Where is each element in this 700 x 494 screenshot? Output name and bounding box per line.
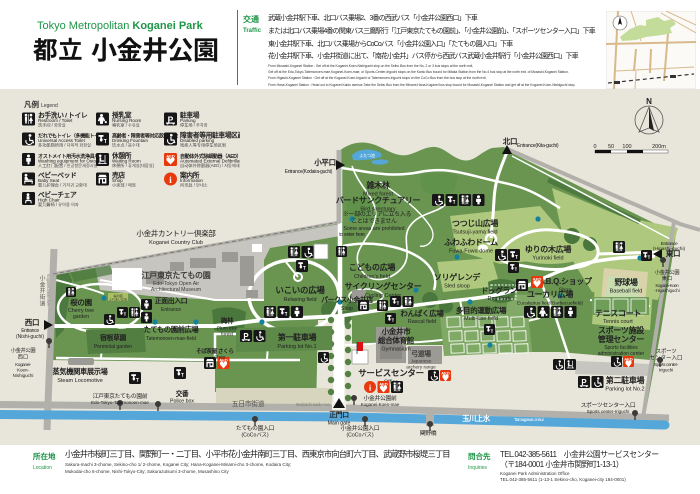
svg-text:ふれあい広場: ふれあい広場 xyxy=(109,297,127,302)
svg-text:ふわふわドーム: ふわふわドーム xyxy=(444,238,498,247)
svg-text:Entrance: Entrance xyxy=(161,307,181,313)
svg-text:Children’s field: Children’s field xyxy=(354,274,390,280)
svg-text:Nishiguchi: Nishiguchi xyxy=(13,373,34,378)
svg-text:西口: 西口 xyxy=(18,354,28,361)
svg-text:管理センター: 管理センター xyxy=(598,334,644,344)
svg-text:弓道場: 弓道場 xyxy=(411,349,431,358)
svg-text:小平口: 小平口 xyxy=(314,157,336,167)
svg-text:わんぱく広場: わんぱく広場 xyxy=(400,308,444,318)
svg-text:五日市街道: 五日市街道 xyxy=(232,399,265,408)
svg-text:-Higashiguchi: -Higashiguchi xyxy=(654,288,679,293)
svg-text:AED: AED xyxy=(441,371,450,376)
svg-text:スポーツセンター入口: スポーツセンター入口 xyxy=(581,401,636,409)
svg-text:Iriguchi: Iriguchi xyxy=(659,368,674,373)
svg-text:蒸気機関車展示場: 蒸気機関車展示場 xyxy=(52,367,108,376)
svg-text:Perennial garden: Perennial garden xyxy=(94,344,132,350)
svg-text:関野橋: 関野橋 xyxy=(420,429,437,437)
svg-text:(Nishi-guchi): (Nishi-guchi) xyxy=(16,334,44,340)
svg-text:forest: forest xyxy=(221,331,234,337)
svg-text:ことはできません: ことはできません xyxy=(351,218,397,225)
svg-text:(Higashi-guchi): (Higashi-guchi) xyxy=(653,246,686,252)
svg-text:50: 50 xyxy=(608,144,614,150)
svg-text:Entrance(Kita-guchi): Entrance(Kita-guchi) xyxy=(517,143,559,149)
svg-text:小金井公園入口: 小金井公園入口 xyxy=(341,424,380,432)
svg-text:Dog Park: Dog Park xyxy=(488,296,511,302)
svg-text:Sports center-Iriguchi: Sports center-Iriguchi xyxy=(587,409,630,414)
svg-text:Koganei-Koen-mae: Koganei-Koen-mae xyxy=(361,402,400,407)
svg-text:AED: AED xyxy=(533,277,542,282)
svg-text:AED: AED xyxy=(624,357,633,362)
svg-text:梅林: 梅林 xyxy=(221,316,234,325)
svg-text:Eucalyptus field(Barbecuefield: Eucalyptus field(Barbecuefield) xyxy=(517,301,584,307)
svg-text:Shop: Shop xyxy=(214,355,226,361)
svg-text:テニスコート: テニスコート xyxy=(595,309,641,318)
svg-text:たてもの園前広場: たてもの園前広場 xyxy=(144,325,200,334)
svg-text:B.B.Q.ショップ: B.B.Q.ショップ xyxy=(538,276,593,286)
svg-text:Itsukaichi-kaido Ave.: Itsukaichi-kaido Ave. xyxy=(296,402,331,407)
svg-text:小金井街道: 小金井街道 xyxy=(38,274,45,307)
svg-text:こどもの広場: こどもの広場 xyxy=(349,262,395,272)
svg-text:Koganei Country Club: Koganei Country Club xyxy=(149,240,203,246)
svg-text:ソリゲレンデ: ソリゲレンデ xyxy=(434,272,481,282)
svg-text:Tamagawa Josui: Tamagawa Josui xyxy=(514,417,544,422)
svg-text:Shop: Shop xyxy=(341,306,353,312)
svg-text:200m: 200m xyxy=(652,144,666,150)
svg-text:小金井市: 小金井市 xyxy=(382,326,412,336)
svg-text:野球場: 野球場 xyxy=(614,277,637,287)
svg-text:小金井公園前: 小金井公園前 xyxy=(364,394,397,402)
svg-text:Rascal field: Rascal field xyxy=(408,319,436,325)
svg-text:雑木林: 雑木林 xyxy=(365,180,389,190)
svg-text:Fuwa-Fuwa dome: Fuwa-Fuwa dome xyxy=(449,249,493,255)
svg-text:宿根草園: 宿根草園 xyxy=(100,333,126,342)
svg-text:Architectural Museum: Architectural Museum xyxy=(151,287,201,293)
svg-text:第二駐車場: 第二駐車場 xyxy=(606,375,645,385)
svg-text:to enter here: to enter here xyxy=(339,232,365,238)
svg-text:0: 0 xyxy=(593,144,596,150)
svg-text:Multi-use field: Multi-use field xyxy=(464,316,498,322)
svg-text:西口: 西口 xyxy=(25,318,39,327)
svg-text:(CoCoバス): (CoCoバス) xyxy=(241,432,268,439)
svg-text:Plum tree: Plum tree xyxy=(217,326,238,332)
svg-text:玉川上水: 玉川上水 xyxy=(462,414,491,423)
svg-text:Entrance(Kodaira-guchi): Entrance(Kodaira-guchi) xyxy=(285,169,333,175)
svg-text:そば茶屋 さくら: そば茶屋 さくら xyxy=(196,347,234,355)
svg-text:Japanese: Japanese xyxy=(411,359,432,365)
svg-text:※一部のエリアに立ち入る: ※一部のエリアに立ち入る xyxy=(343,210,412,218)
svg-text:多目的運動広場: 多目的運動広場 xyxy=(456,305,507,315)
svg-text:江戸東京たてもの園: 江戸東京たてもの園 xyxy=(142,270,211,280)
svg-text:交番: 交番 xyxy=(176,389,189,398)
svg-text:(CoCoバス): (CoCoバス) xyxy=(346,432,373,439)
svg-text:Relaxing field: Relaxing field xyxy=(283,297,316,303)
svg-text:ふたつ池: ふたつ池 xyxy=(359,152,376,159)
svg-text:AED: AED xyxy=(379,382,388,387)
svg-text:第一駐車場: 第一駐車場 xyxy=(278,332,317,342)
svg-text:ユーカリ広場: ユーカリ広場 xyxy=(527,289,573,299)
svg-text:N: N xyxy=(646,97,652,106)
svg-text:Baseball field: Baseball field xyxy=(610,289,643,295)
svg-text:Tennis court: Tennis court xyxy=(603,319,633,325)
svg-text:いこいの広場: いこいの広場 xyxy=(275,285,325,295)
svg-text:Edo-Tokyo-Tatemonoen-mae: Edo-Tokyo-Tatemonoen-mae xyxy=(91,400,149,405)
svg-text:Police box: Police box xyxy=(170,399,194,405)
svg-text:Edo-Tokyo Open Air: Edo-Tokyo Open Air xyxy=(153,281,199,287)
svg-text:ドッグラン: ドッグラン xyxy=(481,285,518,295)
svg-text:小金井公園: 小金井公園 xyxy=(655,268,680,276)
svg-text:スポーツ: スポーツ xyxy=(656,348,677,355)
svg-text:サービスセンター: サービスセンター xyxy=(358,368,424,378)
svg-text:北口: 北口 xyxy=(503,136,517,146)
svg-text:100: 100 xyxy=(622,144,631,150)
svg-text:つつじ山広場: つつじ山広場 xyxy=(452,218,498,228)
svg-text:ゆりの木広場: ゆりの木広場 xyxy=(525,244,571,254)
svg-text:桜の園: 桜の園 xyxy=(70,297,92,307)
svg-text:Steam Locomotive: Steam Locomotive xyxy=(57,378,103,384)
svg-text:センター入口: センター入口 xyxy=(649,354,682,362)
svg-text:小金井カントリー倶楽部: 小金井カントリー倶楽部 xyxy=(136,228,216,238)
svg-text:サイクリングセンター: サイクリングセンター xyxy=(345,281,422,291)
svg-text:Sports center-: Sports center- xyxy=(654,362,679,367)
svg-text:Gymnasium: Gymnasium xyxy=(381,347,411,353)
svg-text:江戸東京たてもの園前: 江戸東京たてもの園前 xyxy=(93,392,148,400)
svg-text:Parking lot No.2: Parking lot No.2 xyxy=(605,387,644,393)
svg-text:Sled sloop: Sled sloop xyxy=(444,284,470,290)
svg-text:administration center: administration center xyxy=(598,351,645,357)
svg-text:Koganei-kaido Ave.: Koganei-kaido Ave. xyxy=(46,274,50,307)
svg-text:Tsutsuji-yama field: Tsutsuji-yama field xyxy=(452,230,497,236)
svg-text:小金井公園: 小金井公園 xyxy=(11,346,36,354)
svg-text:Parking lot No.1: Parking lot No.1 xyxy=(277,344,316,350)
svg-text:たてもの園入口: たてもの園入口 xyxy=(236,425,275,432)
svg-text:Koganei-: Koganei- xyxy=(15,362,31,367)
svg-text:garden: garden xyxy=(73,314,89,320)
svg-text:Koen-: Koen- xyxy=(17,368,30,373)
svg-text:総合体育館: 総合体育館 xyxy=(378,335,415,345)
svg-text:正面出入口: 正面出入口 xyxy=(155,296,188,305)
svg-text:Cherry tree: Cherry tree xyxy=(68,308,94,314)
svg-text:バードサンクチュアリー: バードサンクチュアリー xyxy=(336,195,421,205)
svg-text:Yurinoki field: Yurinoki field xyxy=(532,256,563,262)
svg-text:Tatemonoen-mae-field: Tatemonoen-mae-field xyxy=(146,336,196,342)
svg-text:正門口: 正門口 xyxy=(329,410,349,419)
svg-text:東口: 東口 xyxy=(662,274,672,282)
svg-text:スポーツ施設: スポーツ施設 xyxy=(598,325,645,335)
